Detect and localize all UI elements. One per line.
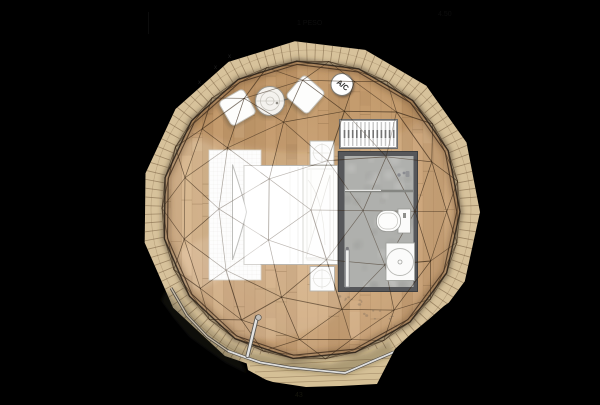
svg-text:43: 43 xyxy=(295,392,303,399)
svg-text:x: x xyxy=(214,65,217,71)
svg-text:4.50: 4.50 xyxy=(438,11,452,18)
svg-text:x: x xyxy=(198,80,201,86)
svg-text:x: x xyxy=(228,54,231,60)
svg-text:1 PESO: 1 PESO xyxy=(297,20,323,27)
